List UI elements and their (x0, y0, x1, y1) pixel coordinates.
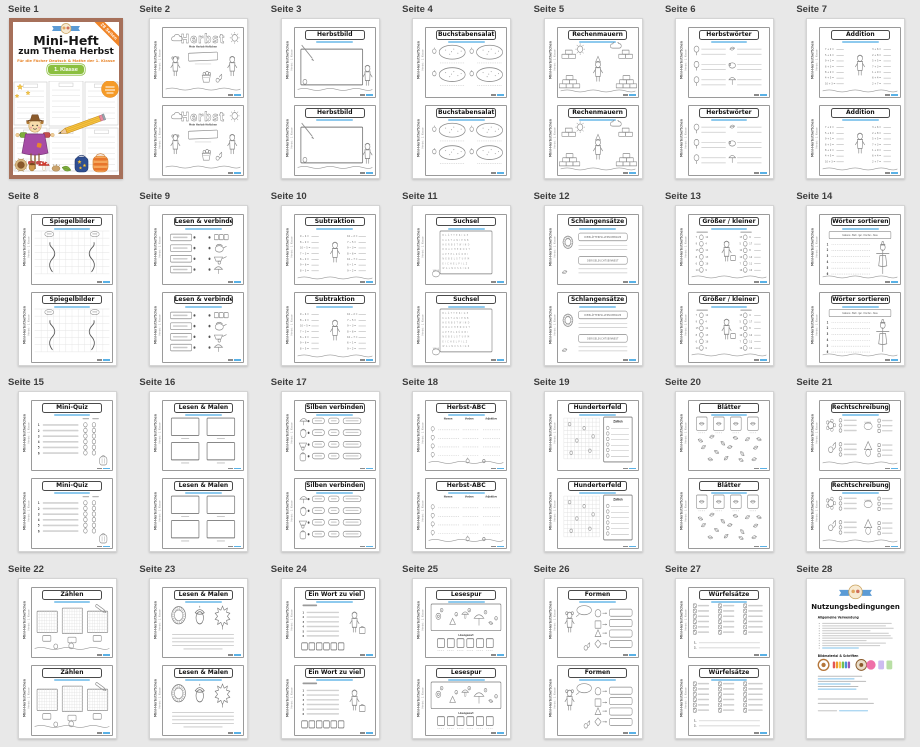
svg-text:9 − 4 =: 9 − 4 = (300, 234, 309, 238)
svg-text:10 − 2 =: 10 − 2 = (347, 312, 357, 316)
mini-page: Mini-HerbstheftchenHerbst · 1. Klasse Le… (153, 587, 244, 658)
worksheet-title: Addition (831, 30, 891, 40)
page-label: Seite 15 (8, 377, 131, 389)
worksheet-title: Silben verbinden (305, 403, 365, 413)
page-label: Seite 20 (665, 377, 788, 389)
worksheet-illustration (559, 680, 637, 731)
footer-credit (754, 94, 767, 96)
page-cell: Seite 26 Mini-HerbstheftchenHerbst · 1. … (526, 560, 657, 747)
mini-page: Mini-HerbstheftchenHerbst · 1. Klasse Wü… (679, 587, 770, 658)
page-thumbnail[interactable]: Mini-HerbstheftchenHerbst · 1. Klasse Hu… (544, 391, 643, 552)
page-grid: Seite 1 28 Seiten Mini-Heft zum Thema He… (0, 0, 920, 747)
worksheet-page: Addition 7 + 2 =5 + 4 =9 + 1 =6 + 3 =8 +… (819, 27, 901, 98)
page-thumbnail[interactable]: Mini-HerbstheftchenHerbst · 1. Klasse Su… (412, 205, 511, 366)
side-caption: Mini-HerbstheftchenHerbst · 1. Klasse (153, 400, 162, 466)
svg-text:Herbst · 1. Klasse: Herbst · 1. Klasse (553, 236, 556, 257)
svg-text:4: 4 (705, 319, 707, 323)
worksheet-title: Würfelsätze (699, 590, 759, 600)
worksheet-page: Würfelsätze 1.2. (688, 587, 770, 658)
worksheet-illustration: 31425Lösungswort (427, 680, 505, 731)
svg-text:K A S T A N I E N B: K A S T A N I E N B (443, 238, 469, 241)
svg-text:Mini-Herbstheftchen: Mini-Herbstheftchen (417, 118, 421, 157)
page-label: Seite 2 (139, 4, 262, 16)
footer-credit (885, 94, 898, 96)
svg-text:8 − 2 =: 8 − 2 = (300, 317, 309, 321)
svg-text:6: 6 (696, 261, 698, 265)
footer-credit (623, 281, 636, 283)
svg-text:10 − 7 =: 10 − 7 = (347, 334, 357, 338)
svg-text:Mini-Herbstheftchen: Mini-Herbstheftchen (417, 305, 421, 344)
worksheet-illustration: HerbstMein Herbst-Heftchen (164, 30, 242, 93)
worksheet-title: Würfelsätze (699, 668, 759, 678)
worksheet-illustration (164, 493, 242, 544)
worksheet-page: Herbstbild (294, 27, 376, 98)
worksheet-title: Schlangensätze (568, 217, 628, 227)
footer-credit (885, 546, 898, 548)
page-thumbnail[interactable]: Mini-HerbstheftchenHerbst · 1. Klasse Le… (412, 578, 511, 739)
footer-credit (228, 546, 241, 548)
svg-text:Mini-Herbstheftchen: Mini-Herbstheftchen (417, 40, 421, 79)
footer-credit (623, 172, 636, 174)
mini-page: Mini-HerbstheftchenHerbst · 1. Klasse Re… (548, 105, 639, 176)
svg-text:Mini-Herbstheftchen: Mini-Herbstheftchen (679, 305, 683, 344)
svg-text:6: 6 (302, 634, 304, 638)
cover-subtitle-wrap: Für die Fächer Deutsch & Mathe der 1. Kl… (13, 57, 119, 64)
page-thumbnail[interactable]: Mini-HerbstheftchenHerbst · 1. Klasse Sp… (18, 205, 117, 366)
svg-text:9: 9 (705, 267, 707, 271)
page-label: Seite 18 (402, 377, 525, 389)
worksheet-page: Lesen & Malen (162, 478, 244, 549)
svg-text:8 − 6 =: 8 − 6 = (347, 251, 356, 255)
worksheet-illustration (33, 680, 111, 731)
mini-page: Mini-HerbstheftchenHerbst · 1. Klasse Bu… (416, 105, 507, 176)
svg-text:Mini-Herbstheftchen: Mini-Herbstheftchen (548, 40, 552, 79)
worksheet-illustration (164, 415, 242, 466)
footer-credit (491, 468, 504, 470)
page-cell: Seite 21 Mini-HerbstheftchenHerbst · 1. … (788, 373, 919, 560)
svg-text:15: 15 (696, 326, 699, 330)
cover-illustration (13, 81, 119, 175)
svg-text:Herbst · 1. Klasse: Herbst · 1. Klasse (553, 127, 556, 148)
svg-text:2: 2 (38, 507, 40, 511)
svg-text:6: 6 (827, 349, 829, 353)
mini-page: Mini-HerbstheftchenHerbst · 1. Klasse Si… (285, 400, 376, 471)
page-thumbnail[interactable]: Mini-HerbstheftchenHerbst · 1. Klasse Ad… (806, 18, 905, 179)
worksheet-page: Lesen & verbinden (162, 214, 244, 285)
svg-text:17: 17 (749, 241, 752, 245)
svg-text:2 + 8 =: 2 + 8 = (873, 53, 882, 57)
svg-text:5: 5 (38, 446, 40, 450)
page-thumbnail[interactable]: Mini-HerbstheftchenHerbst · 1. Klasse Le… (149, 205, 248, 366)
cover-page-thumbnail[interactable]: 28 Seiten Mini-Heft zum Thema Herbst Für… (9, 18, 123, 179)
svg-text:Lösungswort: Lösungswort (459, 712, 475, 715)
page-thumbnail[interactable]: Mini-HerbstheftchenHerbst · 1. Klasse Si… (281, 391, 380, 552)
svg-text:5: 5 (302, 629, 304, 633)
svg-text:4: 4 (705, 241, 707, 245)
mini-page: Mini-HerbstheftchenHerbst · 1. Klasse Su… (285, 292, 376, 363)
svg-text:6 − 2 =: 6 − 2 = (300, 256, 309, 260)
mini-page: Mini-HerbstheftchenHerbst · 1. Klasse Sc… (548, 292, 639, 363)
worksheet-page: Rechtschreibung (819, 400, 901, 471)
worksheet-illustration: 1.2. (690, 602, 768, 653)
page-thumbnail[interactable]: Mini-HerbstheftchenHerbst · 1. Klasse Bl… (675, 391, 774, 552)
footer-credit (754, 468, 767, 470)
worksheet-page: Hunderterfeld Zahlen (557, 478, 639, 549)
page-thumbnail[interactable]: Mini-HerbstheftchenHerbst · 1. Klasse Bu… (412, 18, 511, 179)
worksheet-title: Suchsel (436, 217, 496, 227)
svg-text:Nomen: Nomen (444, 417, 453, 421)
page-label: Seite 5 (534, 4, 657, 16)
worksheet-title: Rechenmauern (568, 30, 628, 40)
page-cell: Seite 14 Mini-HerbstheftchenHerbst · 1. … (788, 187, 919, 374)
worksheet-title: Herbstwörter (699, 108, 759, 118)
mini-page: Mini-HerbstheftchenHerbst · 1. Klasse Bu… (416, 27, 507, 98)
mini-page: Mini-HerbstheftchenHerbst · 1. Klasse He… (416, 478, 507, 549)
worksheet-illustration: Zahlen (559, 415, 637, 466)
side-caption: Mini-HerbstheftchenHerbst · 1. Klasse (679, 105, 688, 171)
side-caption: Mini-HerbstheftchenHerbst · 1. Klasse (153, 665, 162, 731)
page-label: Seite 16 (139, 377, 262, 389)
worksheet-illustration: 7 + 2 =5 + 4 =9 + 1 =6 + 3 =8 + 2 =4 + 5… (821, 42, 899, 93)
page-cell: Seite 20 Mini-HerbstheftchenHerbst · 1. … (657, 373, 788, 560)
side-caption: Mini-HerbstheftchenHerbst · 1. Klasse (416, 587, 425, 653)
svg-text:Herbst: Herbst (181, 32, 225, 46)
worksheet-illustration (690, 415, 768, 466)
svg-text:1: 1 (827, 320, 829, 324)
footer-credit (623, 546, 636, 548)
page-cell: Seite 27 Mini-HerbstheftchenHerbst · 1. … (657, 560, 788, 747)
worksheet-page: Schlangensätze DIEBLÄTTERFALLENVOMBAUMDE… (557, 214, 639, 285)
svg-text:7 + 2 =: 7 + 2 = (825, 125, 834, 129)
svg-text:Herbst · 1. Klasse: Herbst · 1. Klasse (290, 236, 293, 257)
side-caption: Mini-HerbstheftchenHerbst · 1. Klasse (285, 587, 294, 653)
footer-credit (491, 359, 504, 361)
svg-text:Mini-Herbstheftchen: Mini-Herbstheftchen (417, 227, 421, 266)
mini-page: Mini-HerbstheftchenHerbst · 1. Klasse Sp… (22, 292, 113, 363)
svg-text:12: 12 (705, 235, 708, 239)
svg-text:Mini-Herbstheftchen: Mini-Herbstheftchen (811, 492, 815, 531)
svg-text:Mini-Herbstheftchen: Mini-Herbstheftchen (23, 305, 27, 344)
svg-text:5 + 5 =: 5 + 5 = (873, 136, 882, 140)
svg-text:10 − 7 =: 10 − 7 = (347, 256, 357, 260)
page-thumbnail[interactable]: Mini-HerbstheftchenHerbst · 1. Klasse He… (412, 391, 511, 552)
svg-text:3: 3 (38, 434, 40, 438)
worksheet-page: Größer / kleiner 71294151181361614913951… (688, 214, 770, 285)
page-thumbnail[interactable]: Mini-HerbstheftchenHerbst · 1. Klasse Re… (544, 18, 643, 179)
side-caption: Mini-HerbstheftchenHerbst · 1. Klasse (22, 214, 31, 280)
svg-text:12: 12 (705, 313, 708, 317)
svg-text:5: 5 (496, 696, 497, 698)
worksheet-title: Mini-Quiz (42, 403, 102, 413)
svg-text:H E R B S T W I N D: H E R B S T W I N D (443, 321, 470, 324)
footer-credit (754, 172, 767, 174)
page-cell: Seite 2 Mini-HerbstheftchenHerbst · 1. K… (131, 0, 262, 187)
svg-text:D R A C H E N O S T: D R A C H E N O S T (443, 248, 471, 251)
page-thumbnail[interactable]: Mini-HerbstheftchenHerbst · 1. Klasse Zä… (18, 578, 117, 739)
worksheet-page: Rechenmauern (557, 27, 639, 98)
grade-badge: 1. Klasse (48, 65, 84, 74)
page-cell: Seite 9 Mini-HerbstheftchenHerbst · 1. K… (131, 187, 262, 374)
svg-text:Mini-Herbstheftchen: Mini-Herbstheftchen (417, 414, 421, 453)
side-caption: Mini-HerbstheftchenHerbst · 1. Klasse (153, 587, 162, 653)
worksheet-page: Suchsel B L Ä T T E R I G EK A S T A N I… (425, 292, 507, 363)
worksheet-title: Spiegelbilder (42, 217, 102, 227)
page-thumbnail[interactable]: Mini-HerbstheftchenHerbst · 1. Klasse Le… (149, 578, 248, 739)
svg-text:Mini-Herbstheftchen: Mini-Herbstheftchen (679, 492, 683, 531)
svg-text:7 − 5 =: 7 − 5 = (347, 317, 356, 321)
worksheet-illustration (33, 307, 111, 358)
page-label: Seite 7 (796, 4, 919, 16)
page-thumbnail[interactable]: Mini-HerbstheftchenHerbst · 1. Klasse Su… (281, 205, 380, 366)
side-caption: Mini-HerbstheftchenHerbst · 1. Klasse (285, 27, 294, 93)
worksheet-page: Rechenmauern (557, 105, 639, 176)
worksheet-title: Lesespur (436, 590, 496, 600)
worksheet-page: Silben verbinden (294, 400, 376, 471)
worksheet-title: Lesespur (436, 668, 496, 678)
worksheet-title: Blätter (699, 481, 759, 491)
page-label: Seite 9 (139, 191, 262, 203)
svg-text:Herbst · 1. Klasse: Herbst · 1. Klasse (290, 127, 293, 148)
svg-text:Zahlen: Zahlen (613, 498, 622, 502)
page-thumbnail[interactable]: Mini-HerbstheftchenHerbst · 1. Klasse Wü… (675, 578, 774, 739)
worksheet-title: Rechtschreibung (831, 403, 891, 413)
svg-text:14: 14 (696, 345, 699, 349)
footer-credit (885, 359, 898, 361)
svg-text:Mini-Herbstheftchen: Mini-Herbstheftchen (23, 678, 27, 717)
side-caption: Mini-HerbstheftchenHerbst · 1. Klasse (548, 105, 557, 171)
side-caption: Mini-HerbstheftchenHerbst · 1. Klasse (679, 27, 688, 93)
svg-text:Mini-Herbstheftchen: Mini-Herbstheftchen (679, 678, 683, 717)
worksheet-illustration: 7 + 2 =5 + 4 =9 + 1 =6 + 3 =8 + 2 =4 + 5… (821, 120, 899, 171)
page-cell: Seite 15 Mini-HerbstheftchenHerbst · 1. … (0, 373, 131, 560)
svg-text:Kastanie · Blatt · Igel · Drac: Kastanie · Blatt · Igel · Drachen · Nuss (843, 312, 878, 315)
side-caption: Mini-HerbstheftchenHerbst · 1. Klasse (285, 214, 294, 280)
footer-credit (754, 359, 767, 361)
side-caption: Mini-HerbstheftchenHerbst · 1. Klasse (548, 292, 557, 358)
mini-page: Mini-HerbstheftchenHerbst · 1. Klasse He… (679, 105, 770, 176)
mini-page: Mini-HerbstheftchenHerbst · 1. Klasse He… (416, 400, 507, 471)
mini-page: Mini-HerbstheftchenHerbst · 1. Klasse Si… (285, 478, 376, 549)
page-label: Seite 4 (402, 4, 525, 16)
svg-text:B L Ä T T E R I G E: B L Ä T T E R I G E (443, 312, 469, 315)
page-label: Seite 21 (796, 377, 919, 389)
page-label: Seite 14 (796, 191, 919, 203)
footer-credit (623, 359, 636, 361)
svg-text:6 − 2 =: 6 − 2 = (300, 334, 309, 338)
svg-text:Mini-Herbstheftchen: Mini-Herbstheftchen (154, 492, 158, 531)
svg-text:2.: 2. (694, 723, 696, 727)
svg-text:15: 15 (696, 248, 699, 252)
worksheet-title: Hunderterfeld (568, 481, 628, 491)
page-label: Seite 12 (534, 191, 657, 203)
mini-page: Mini-HerbstheftchenHerbst · 1. Klasse Fo… (548, 665, 639, 736)
svg-text:Mini-Herbstheftchen: Mini-Herbstheftchen (23, 227, 27, 266)
page-label: Seite 19 (534, 377, 657, 389)
worksheet-page: Blätter (688, 478, 770, 549)
page-thumbnail[interactable]: Mini-HerbstheftchenHerbst · 1. Klasse Le… (149, 391, 248, 552)
page-thumbnail[interactable]: Mini-HerbstheftchenHerbst · 1. Klasse Mi… (18, 391, 117, 552)
worksheet-illustration: 123456 (296, 602, 374, 653)
page-thumbnail[interactable]: NutzungsbedingungenAllgemeine Verwendung… (806, 578, 905, 739)
mini-page: Mini-HerbstheftchenHerbst · 1. Klasse Fo… (548, 587, 639, 658)
svg-text:5: 5 (38, 524, 40, 528)
page-cell: Seite 8 Mini-HerbstheftchenHerbst · 1. K… (0, 187, 131, 374)
svg-text:Mini-Herbstheftchen: Mini-Herbstheftchen (679, 118, 683, 157)
footer-credit (885, 172, 898, 174)
worksheet-title: Mini-Quiz (42, 481, 102, 491)
side-caption: Mini-HerbstheftchenHerbst · 1. Klasse (285, 665, 294, 731)
footer-credit (228, 654, 241, 656)
mini-page: Mini-HerbstheftchenHerbst · 1. Klasse He… (153, 27, 244, 98)
mini-page: Mini-HerbstheftchenHerbst · 1. Klasse He… (153, 105, 244, 176)
worksheet-illustration (296, 42, 374, 93)
svg-text:Mini-Herbstheftchen: Mini-Herbstheftchen (285, 305, 289, 344)
svg-text:11: 11 (705, 248, 708, 252)
page-cell: Seite 13 Mini-HerbstheftchenHerbst · 1. … (657, 187, 788, 374)
svg-text:D R A C H E N O S T: D R A C H E N O S T (443, 326, 471, 329)
svg-text:1: 1 (827, 242, 829, 246)
svg-text:Mini-Herbstheftchen: Mini-Herbstheftchen (548, 600, 552, 639)
worksheet-page: Wörter sortieren Kastanie · Blatt · Igel… (819, 292, 901, 363)
page-thumbnail[interactable]: Mini-HerbstheftchenHerbst · 1. Klasse He… (281, 18, 380, 179)
worksheet-illustration: Kastanie · Blatt · Igel · Drachen · Nuss… (821, 307, 899, 358)
side-caption: Mini-HerbstheftchenHerbst · 1. Klasse (679, 400, 688, 466)
svg-text:Mini-Herbstheftchen: Mini-Herbstheftchen (23, 414, 27, 453)
side-caption: Mini-HerbstheftchenHerbst · 1. Klasse (153, 27, 162, 93)
svg-text:Mini-Herbstheftchen: Mini-Herbstheftchen (679, 600, 683, 639)
svg-text:Mini-Herbstheftchen: Mini-Herbstheftchen (811, 305, 815, 344)
svg-text:H E R B S T W I N D: H E R B S T W I N D (443, 243, 470, 246)
svg-text:8: 8 (749, 248, 751, 252)
footer-credit (228, 172, 241, 174)
page-cell: Seite 10 Mini-HerbstheftchenHerbst · 1. … (263, 187, 394, 374)
mini-page: Mini-HerbstheftchenHerbst · 1. Klasse Ei… (285, 665, 376, 736)
page-thumbnail[interactable]: Mini-HerbstheftchenHerbst · 1. Klasse Re… (806, 391, 905, 552)
svg-text:9 − 2 =: 9 − 2 = (347, 268, 356, 272)
page-cell: Seite 18 Mini-HerbstheftchenHerbst · 1. … (394, 373, 525, 560)
mini-page: Mini-HerbstheftchenHerbst · 1. Klasse Hu… (548, 400, 639, 471)
footer-credit (360, 654, 373, 656)
worksheet-illustration: NomenVerbenAdjektive (427, 415, 505, 466)
svg-text:Mini-Herbstheftchen: Mini-Herbstheftchen (154, 118, 158, 157)
svg-text:Nomen: Nomen (444, 495, 453, 499)
svg-text:Herbst: Herbst (181, 110, 225, 124)
footer-credit (360, 359, 373, 361)
svg-text:Herbst · 1. Klasse: Herbst · 1. Klasse (290, 314, 293, 335)
svg-text:3 + 6 =: 3 + 6 = (873, 125, 882, 129)
page-thumbnail[interactable]: Mini-HerbstheftchenHerbst · 1. Klasse Gr… (675, 205, 774, 366)
worksheet-illustration (821, 493, 899, 544)
footer-credit (97, 359, 110, 361)
page-cell: Seite 4 Mini-HerbstheftchenHerbst · 1. K… (394, 0, 525, 187)
worksheet-page: Rechtschreibung (819, 478, 901, 549)
svg-text:13: 13 (740, 313, 743, 317)
page-cell: Seite 19 Mini-HerbstheftchenHerbst · 1. … (526, 373, 657, 560)
footer-credit (623, 94, 636, 96)
worksheet-illustration (164, 229, 242, 280)
worksheet-illustration: Zahlen (559, 493, 637, 544)
side-caption: Mini-HerbstheftchenHerbst · 1. Klasse (22, 665, 31, 731)
mini-page: Mini-HerbstheftchenHerbst · 1. Klasse Wö… (810, 292, 901, 363)
side-caption: Mini-HerbstheftchenHerbst · 1. Klasse (679, 214, 688, 280)
side-caption: Mini-HerbstheftchenHerbst · 1. Klasse (416, 27, 425, 93)
mini-page: Mini-HerbstheftchenHerbst · 1. Klasse Sc… (548, 214, 639, 285)
svg-text:2: 2 (302, 615, 304, 619)
worksheet-title: Hunderterfeld (568, 403, 628, 413)
page-cell: Seite 11 Mini-HerbstheftchenHerbst · 1. … (394, 187, 525, 374)
page-cell: Seite 3 Mini-HerbstheftchenHerbst · 1. K… (263, 0, 394, 187)
worksheet-illustration: HerbstMein Herbst-Heftchen (164, 108, 242, 171)
side-caption: Mini-HerbstheftchenHerbst · 1. Klasse (679, 292, 688, 358)
svg-text:8: 8 (696, 254, 698, 258)
svg-text:Mini-Herbstheftchen: Mini-Herbstheftchen (285, 227, 289, 266)
worksheet-title: Herbst-ABC (436, 403, 496, 413)
worksheet-illustration: DIEBLÄTTERFALLENVOMBAUMDERIGELSUCHTSEINN… (559, 307, 637, 358)
mini-page: Mini-HerbstheftchenHerbst · 1. Klasse Bl… (679, 478, 770, 549)
svg-text:Bildmaterial & Schriften: Bildmaterial & Schriften (818, 654, 859, 658)
cover-subtitle: Für die Fächer Deutsch & Mathe der 1. Kl… (17, 58, 115, 63)
svg-text:5: 5 (496, 618, 497, 620)
worksheet-page: Ein Wort zu viel 123456 (294, 587, 376, 658)
worksheet-illustration: 71294151181361614913951712819147111610 (690, 229, 768, 280)
svg-text:Mini-Herbstheftchen: Mini-Herbstheftchen (285, 492, 289, 531)
svg-text:7: 7 (740, 261, 742, 265)
svg-text:5: 5 (827, 343, 829, 347)
svg-text:Mini-Herbstheftchen: Mini-Herbstheftchen (548, 414, 552, 453)
svg-text:Mini-Herbstheftchen: Mini-Herbstheftchen (417, 600, 421, 639)
footer-credit (228, 732, 241, 734)
svg-text:Mini-Herbstheftchen: Mini-Herbstheftchen (679, 40, 683, 79)
worksheet-page: Ein Wort zu viel 123456 (294, 665, 376, 736)
page-thumbnail[interactable]: Mini-HerbstheftchenHerbst · 1. Klasse He… (675, 18, 774, 179)
worksheet-page: HerbstMein Herbst-Heftchen (162, 27, 244, 98)
page-thumbnail[interactable]: Mini-HerbstheftchenHerbst · 1. Klasse Fo… (544, 578, 643, 739)
svg-text:11: 11 (705, 326, 708, 330)
worksheet-page: Subtraktion 9 − 4 =8 − 2 =10 − 5 =7 − 3 … (294, 292, 376, 363)
page-thumbnail[interactable]: Mini-HerbstheftchenHerbst · 1. Klasse Wö… (806, 205, 905, 366)
footer-credit (491, 546, 504, 548)
worksheet-title: Lesen & verbinden (174, 217, 234, 227)
svg-text:A P F E L K Ü R B I: A P F E L K Ü R B I (443, 330, 469, 333)
page-label: Seite 17 (271, 377, 394, 389)
svg-text:Herbst · 1. Klasse: Herbst · 1. Klasse (553, 500, 556, 521)
page-thumbnail[interactable]: Mini-HerbstheftchenHerbst · 1. Klasse Sc… (544, 205, 643, 366)
page-thumbnail[interactable]: Mini-HerbstheftchenHerbst · 1. Klasse He… (149, 18, 248, 179)
page-cell: Seite 17 Mini-HerbstheftchenHerbst · 1. … (263, 373, 394, 560)
svg-text:B L Ä T T E R I G E: B L Ä T T E R I G E (443, 234, 469, 237)
svg-text:Mini-Herbstheftchen: Mini-Herbstheftchen (679, 414, 683, 453)
page-thumbnail[interactable]: Mini-HerbstheftchenHerbst · 1. Klasse Ei… (281, 578, 380, 739)
footer-credit (360, 281, 373, 283)
side-caption: Mini-HerbstheftchenHerbst · 1. Klasse (810, 400, 819, 466)
svg-text:Mini-Herbstheftchen: Mini-Herbstheftchen (285, 118, 289, 157)
svg-text:3: 3 (302, 620, 304, 624)
svg-text:11: 11 (749, 339, 752, 343)
svg-text:Mini-Herbstheftchen: Mini-Herbstheftchen (548, 305, 552, 344)
svg-text:5: 5 (827, 265, 829, 269)
svg-text:9 − 3 =: 9 − 3 = (347, 323, 356, 327)
worksheet-page: Buchstabensalat (425, 27, 507, 98)
worksheet-page: Spiegelbilder (31, 214, 113, 285)
footer-credit (754, 654, 767, 656)
mini-page: Mini-HerbstheftchenHerbst · 1. Klasse Bl… (679, 400, 770, 471)
svg-text:Mini-Herbstheftchen: Mini-Herbstheftchen (548, 492, 552, 531)
svg-text:14: 14 (696, 267, 699, 271)
page-cell: Seite 22 Mini-HerbstheftchenHerbst · 1. … (0, 560, 131, 747)
svg-text:Herbst · 1. Klasse: Herbst · 1. Klasse (553, 422, 556, 443)
svg-text:4: 4 (38, 440, 40, 444)
svg-text:1: 1 (456, 692, 457, 694)
